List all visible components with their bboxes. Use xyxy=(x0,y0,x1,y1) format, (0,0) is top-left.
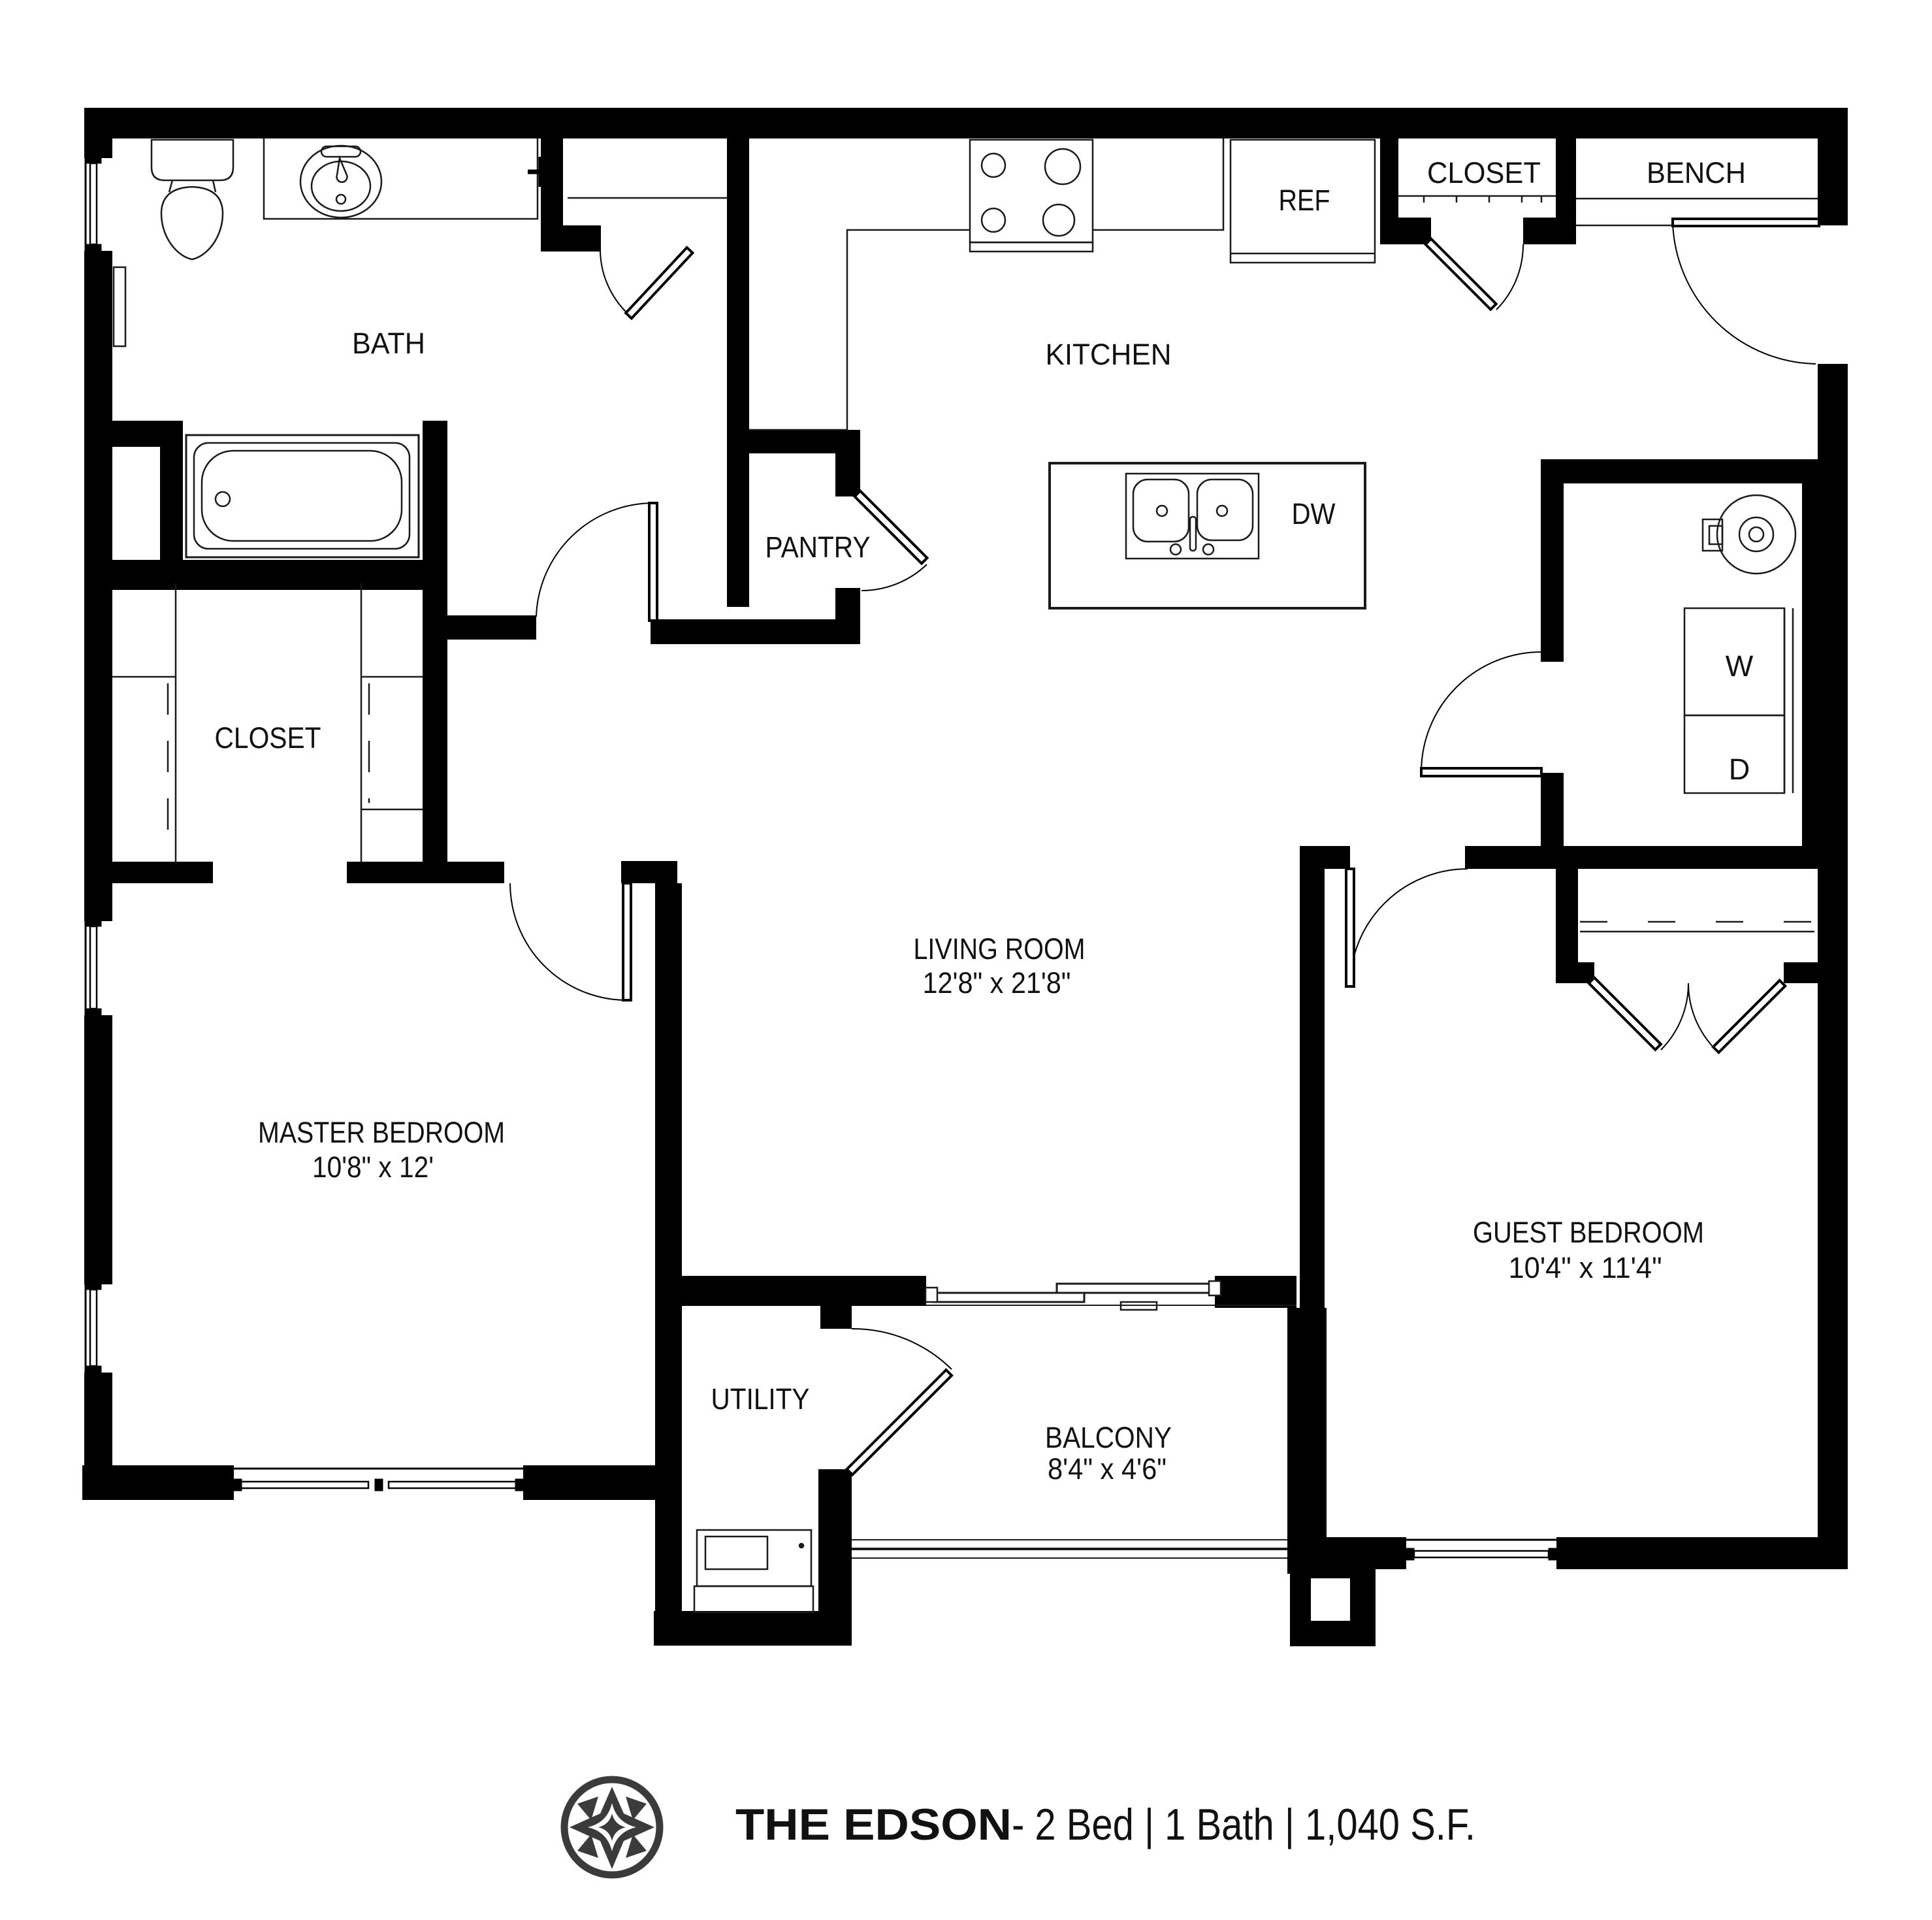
svg-text:10'4" x 11'4": 10'4" x 11'4" xyxy=(1509,1251,1662,1284)
svg-text:LIVING ROOM: LIVING ROOM xyxy=(914,932,1086,966)
svg-text:10'8" x 12': 10'8" x 12' xyxy=(312,1150,434,1184)
svg-text:BENCH: BENCH xyxy=(1647,156,1746,189)
svg-text:REF: REF xyxy=(1279,184,1330,217)
svg-text:GUEST BEDROOM: GUEST BEDROOM xyxy=(1473,1216,1704,1249)
svg-text:D: D xyxy=(1729,753,1750,786)
svg-text:BATH: BATH xyxy=(352,327,425,360)
svg-text:THE EDSON: THE EDSON xyxy=(735,1800,1012,1849)
svg-text:KITCHEN: KITCHEN xyxy=(1046,338,1172,371)
svg-text:12'8" x 21'8": 12'8" x 21'8" xyxy=(923,966,1071,1000)
svg-text:- 2 Bed | 1 Bath | 1,040 S.F.: - 2 Bed | 1 Bath | 1,040 S.F. xyxy=(1012,1800,1475,1849)
svg-text:CLOSET: CLOSET xyxy=(215,721,321,755)
svg-text:CLOSET: CLOSET xyxy=(1427,156,1541,189)
svg-text:8'4" x 4'6": 8'4" x 4'6" xyxy=(1048,1452,1167,1486)
svg-text:UTILITY: UTILITY xyxy=(711,1382,810,1416)
svg-text:W: W xyxy=(1726,649,1754,683)
svg-text:PANTRY: PANTRY xyxy=(765,530,871,564)
svg-text:DW: DW xyxy=(1292,497,1336,530)
svg-text:MASTER BEDROOM: MASTER BEDROOM xyxy=(258,1116,505,1149)
svg-text:BALCONY: BALCONY xyxy=(1045,1421,1172,1454)
